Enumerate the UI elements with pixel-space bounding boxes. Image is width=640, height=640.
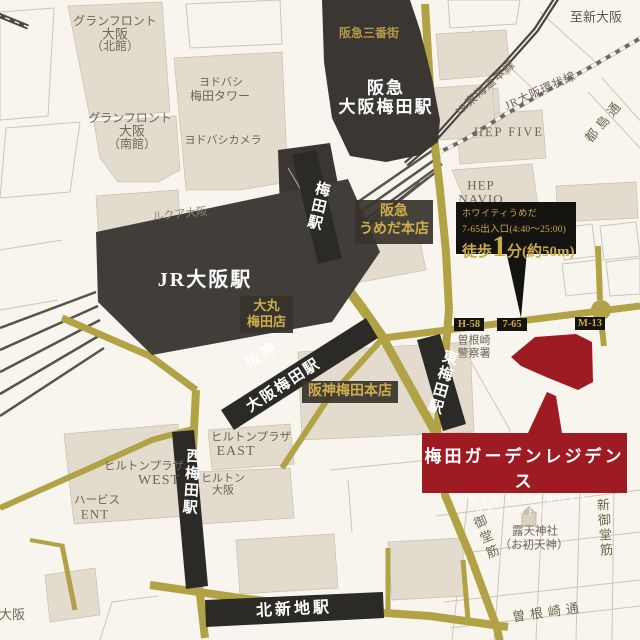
label-to-shin-osaka: 至新大阪: [570, 11, 622, 24]
label-grandfront-south-3: （南館）: [108, 138, 156, 150]
plate-hanshin-dept: 阪神梅田本店: [302, 381, 398, 403]
label-herbis-ent-2: ENT: [81, 508, 109, 521]
walk-prefix: 徒歩: [462, 240, 492, 261]
label-daimaru: 大丸: [240, 298, 293, 314]
walk-suffix: 分(約50m): [507, 240, 575, 261]
label-hilton-plaza-east: ヒルトンプラザ: [211, 432, 291, 444]
label-hilton-plaza-west-2: WEST: [138, 474, 180, 488]
label-grandfront-south-2: 大阪: [119, 125, 145, 138]
label-hep-navio: HEP: [467, 179, 495, 192]
label-grandfront-north: グランフロント: [73, 15, 157, 27]
plate-hankyu-dept: 阪急 うめだ本店: [355, 200, 433, 244]
label-yodobashi-tower: ヨドバシ: [199, 78, 243, 89]
plate-daimaru: 大丸 梅田店: [240, 296, 293, 333]
callout-walk-time: 徒歩 1 分(約50m): [462, 233, 576, 261]
callout-exit-info: 7-65出入口(4:40〜25:00): [462, 221, 576, 235]
label-herbis-ent: ハービス: [74, 495, 120, 507]
label-hankyu-dept-2: うめだ本店: [355, 221, 433, 239]
whity-umeda-callout: ホワイティうめだ 7-65出入口(4:40〜25:00) 徒歩 1 分(約50m…: [456, 202, 576, 254]
label-hankyu-umeda-station: 阪急: [367, 80, 405, 97]
label-shin-midosuji: 新御堂筋: [595, 498, 612, 559]
label-hep-five: HEP FIVE: [474, 126, 544, 139]
umeda-access-map: グランフロント 大阪 （北館） グランフロント 大阪 （南館） ヨドバシ 梅田タ…: [0, 0, 640, 640]
label-grandfront-north-3: （北館）: [91, 40, 139, 52]
label-hilton-osaka: ヒルトン: [201, 474, 245, 485]
label-hankyu-sanbangai: 阪急三番街: [339, 27, 399, 39]
label-daimaru-2: 梅田店: [240, 314, 293, 330]
label-shrine-2: （お初天神）: [500, 540, 569, 552]
exit-marker-7-65: 7-65: [497, 318, 527, 331]
label-hankyu-dept: 阪急: [355, 203, 433, 221]
callout-facility: ホワイティうめだ: [462, 206, 576, 219]
residence-name-ja: 梅田ガーデンレジデンス: [422, 442, 627, 492]
label-to-osaka: 至大阪: [0, 608, 25, 621]
label-hilton-plaza-west: ヒルトンプラザ: [104, 461, 184, 473]
label-police-2: 警察署: [458, 349, 491, 360]
label-hanshin-dept: 阪神梅田本店: [302, 381, 398, 403]
residence-name-box: 梅田ガーデンレジデンス UMEDA GARDEN RESIDENCE: [422, 433, 627, 493]
walk-minutes: 1: [492, 233, 507, 260]
label-hilton-plaza-east-2: EAST: [217, 445, 256, 459]
label-jr-osaka-station: JR大阪駅: [158, 270, 252, 290]
label-hankyu-umeda-station-2: 大阪梅田駅: [339, 99, 434, 116]
label-police: 曽根崎: [458, 336, 491, 347]
exit-marker-h58: H-58: [454, 318, 484, 331]
label-yodobashi-camera: ヨドバシカメラ: [185, 136, 262, 147]
label-hilton-osaka-2: 大阪: [212, 486, 234, 497]
exit-marker-m13: M-13: [575, 317, 605, 330]
label-yodobashi-tower-2: 梅田タワー: [190, 90, 250, 102]
label-grandfront-south: グランフロント: [88, 112, 172, 124]
label-shrine: 露天神社: [512, 526, 558, 538]
